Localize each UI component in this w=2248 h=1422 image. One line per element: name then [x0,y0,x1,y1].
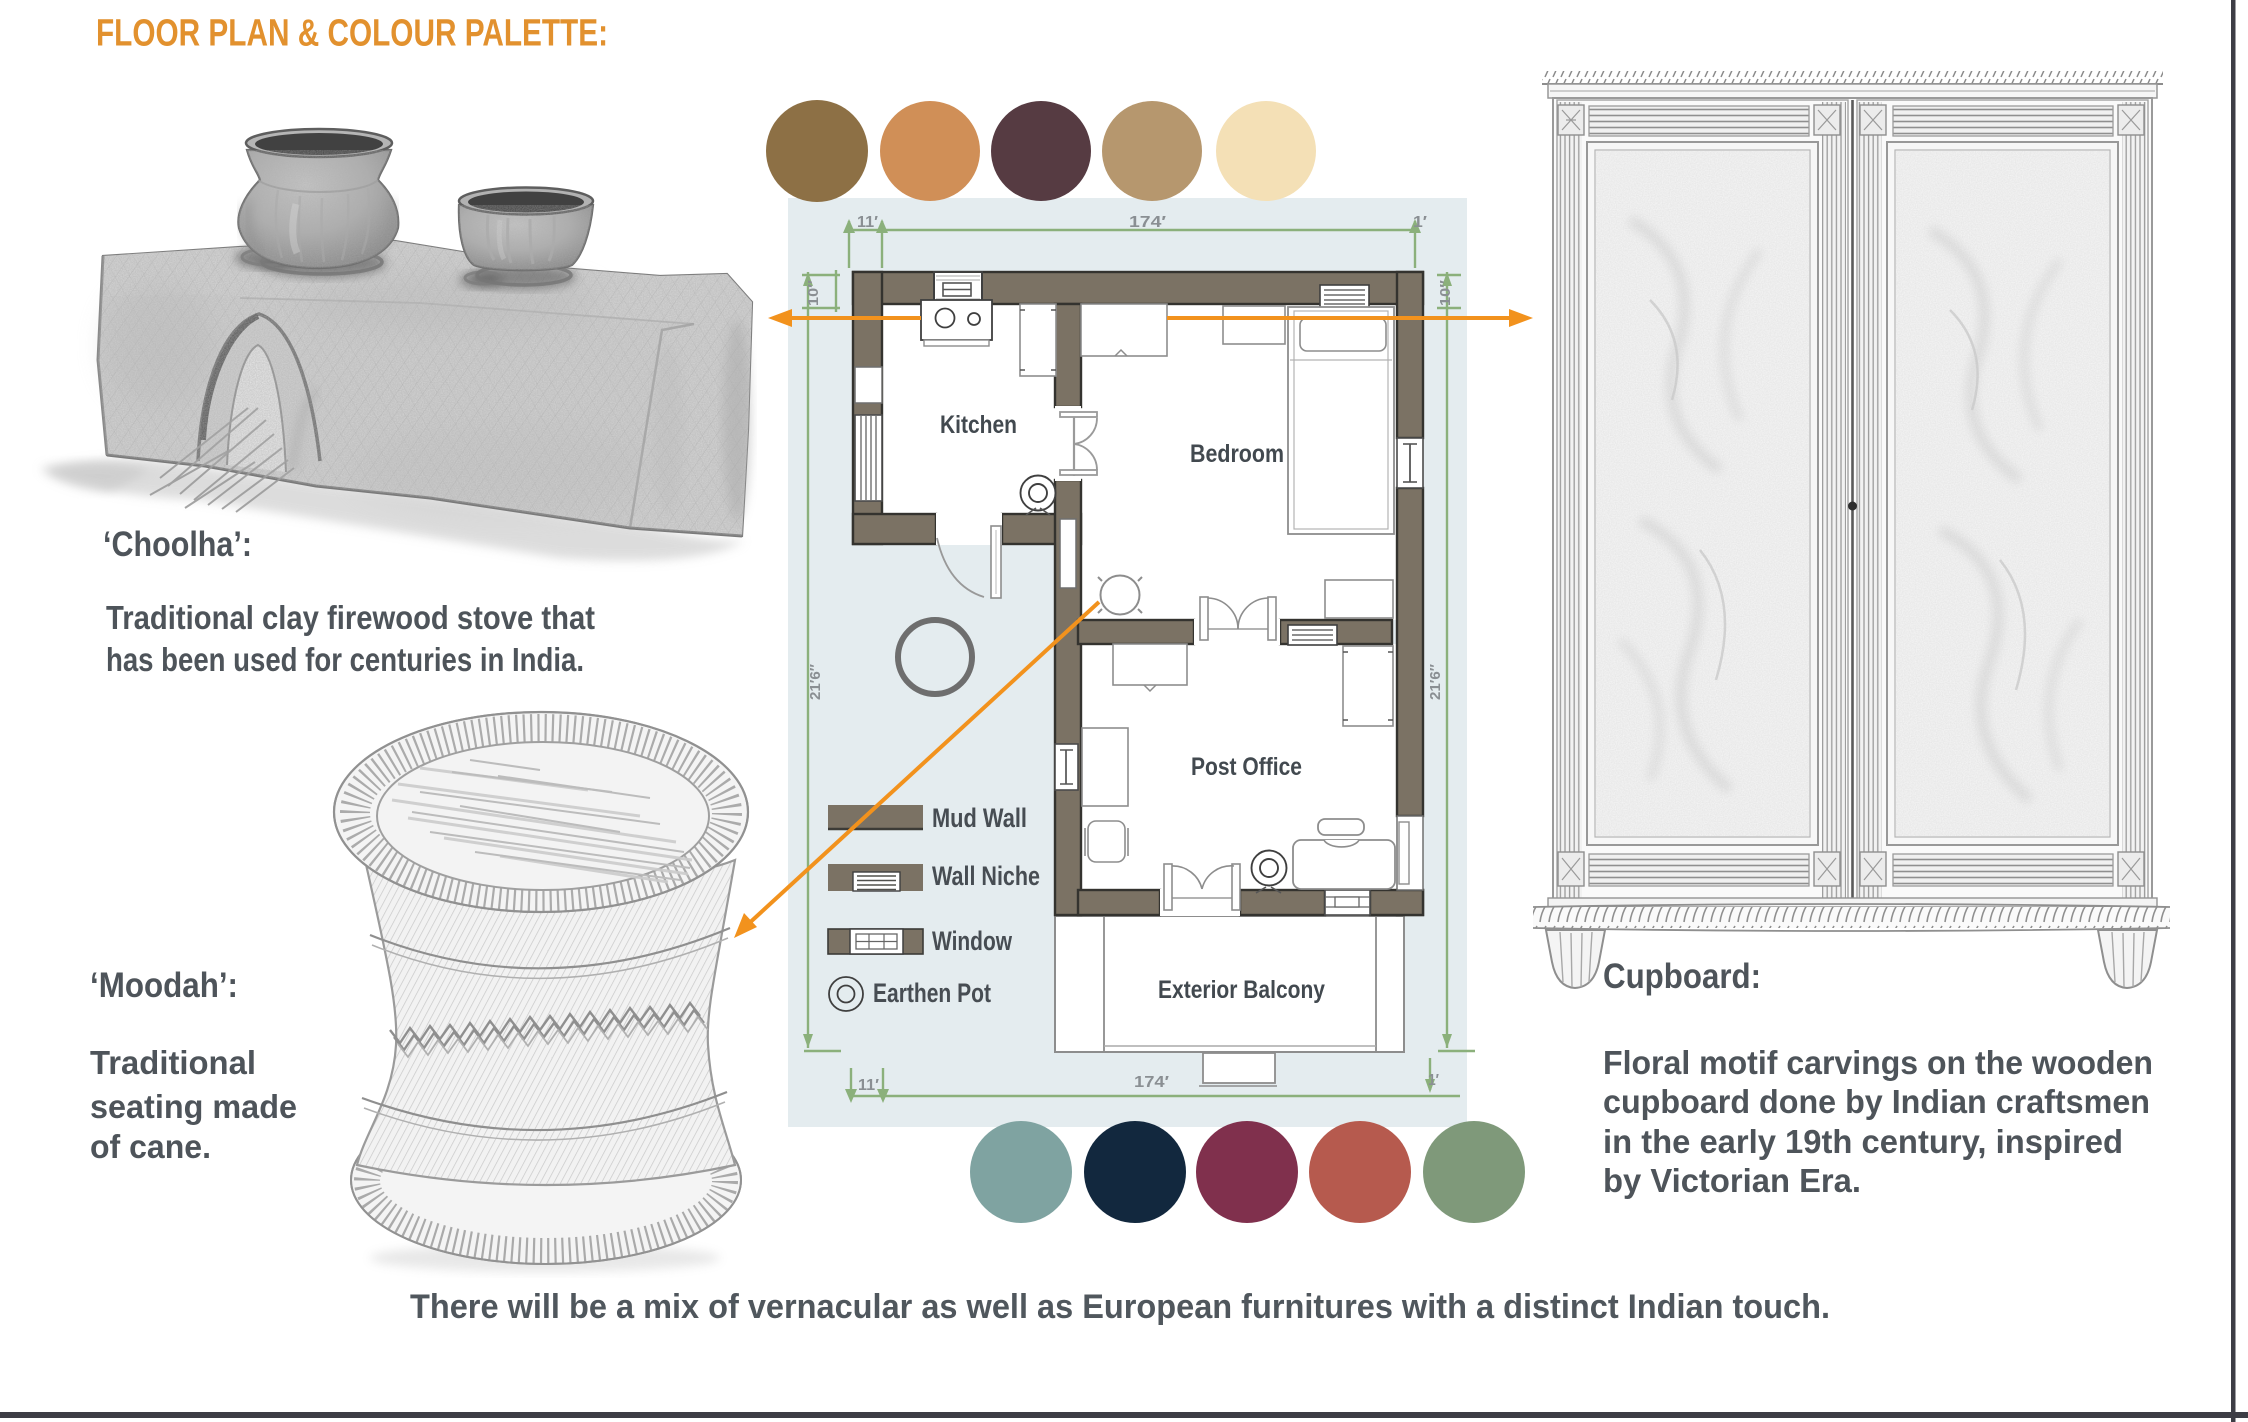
svg-text:Traditional: Traditional [90,1044,256,1081]
svg-text:cupboard done by Indian crafts: cupboard done by Indian craftsmen [1603,1083,2150,1120]
svg-text:1′: 1′ [1413,214,1427,231]
svg-text:by Victorian Era.: by Victorian Era. [1603,1162,1861,1199]
svg-text:Bedroom: Bedroom [1190,440,1284,468]
svg-text:174′: 174′ [1134,1074,1169,1091]
svg-text:Window: Window [932,926,1013,956]
svg-text:10″: 10″ [805,280,822,306]
svg-text:Floral motif carvings on the w: Floral motif carvings on the wooden [1603,1044,2153,1081]
svg-text:11′: 11′ [858,1077,879,1094]
svg-text:Mud Wall: Mud Wall [932,803,1027,833]
svg-text:21′6″: 21′6″ [807,664,824,700]
svg-text:Wall Niche: Wall Niche [932,861,1040,891]
svg-text:10″: 10″ [1437,280,1454,306]
svg-text:has been used for centuries in: has been used for centuries in India. [106,641,584,678]
svg-text:Exterior Balcony: Exterior Balcony [1158,976,1325,1004]
svg-text:Traditional clay firewood stov: Traditional clay firewood stove that [106,599,595,636]
svg-text:Kitchen: Kitchen [940,411,1017,439]
svg-text:Cupboard:: Cupboard: [1603,957,1761,996]
svg-text:21′6″: 21′6″ [1427,664,1444,700]
svg-text:1′: 1′ [1428,1072,1439,1089]
svg-text:174′: 174′ [1129,214,1166,231]
svg-text:of cane.: of cane. [90,1128,211,1165]
svg-text:‘Moodah’:: ‘Moodah’: [90,966,238,1005]
svg-text:FLOOR PLAN & COLOUR PALETTE:: FLOOR PLAN & COLOUR PALETTE: [96,13,608,55]
svg-text:seating made: seating made [90,1088,297,1125]
svg-text:in the early 19th century, ins: in the early 19th century, inspired [1603,1123,2123,1160]
svg-text:Post Office: Post Office [1191,753,1302,781]
svg-text:‘Choolha’:: ‘Choolha’: [103,525,252,564]
svg-text:11′: 11′ [857,214,878,231]
svg-text:There will be a mix of vernacu: There will be a mix of vernacular as wel… [410,1288,1830,1326]
svg-text:Earthen Pot: Earthen Pot [873,978,991,1008]
